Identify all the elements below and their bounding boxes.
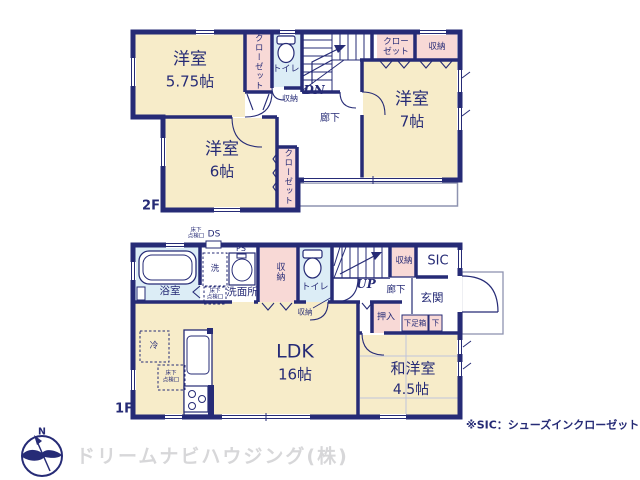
sink-icon (229, 253, 255, 285)
oshiire-label: 押入 (377, 314, 395, 323)
underfloor-ldk-line2: 点検口 (163, 378, 180, 384)
hallway-1f-label: 廊下 (386, 285, 405, 295)
stairs-up-label: UP (356, 278, 376, 290)
floorplan-page: 洋室 5.75帖 クローゼット トイレ 収納 DN クロー ゼット 収納 廊下 … (0, 0, 640, 480)
ldk-size: 16帖 (278, 368, 312, 383)
washitsu-name: 和洋室 (390, 362, 435, 377)
entrance-label: 玄関 (421, 292, 444, 304)
toilet-icon-1f (303, 250, 322, 278)
closet-ne-label-line2: ゼット (383, 48, 409, 57)
closet-ne-label-line1: クロー (383, 38, 409, 47)
underfloor-ldk-line1: 床下 (165, 371, 176, 377)
underfloor-top-line2: 点検口 (188, 234, 205, 240)
bedroom-e-size: 7帖 (400, 115, 425, 130)
sic-note: ※SIC：シューズインクローゼット (466, 420, 639, 431)
toilet-1f-label: トイレ (301, 284, 328, 293)
balcony (299, 183, 458, 206)
toilet-icon-2f (277, 36, 295, 63)
bedroom-sw-name: 洋室 (205, 142, 239, 159)
stairs-1f (334, 247, 382, 278)
company-watermark: ドリームナビハウジング(株) (76, 448, 349, 467)
room-ldk (135, 302, 358, 415)
closet-sw-label: クローゼット (283, 149, 292, 206)
bedroom-sw-size: 6帖 (210, 165, 235, 180)
sic-label: SIC (427, 255, 448, 268)
storage-hall-label: 収納 (395, 257, 412, 266)
floor1-label: 1F (115, 403, 133, 416)
storage-west-label: 収納 (275, 262, 284, 282)
ds-label: DS (208, 231, 221, 240)
ps-label: PS (236, 245, 246, 253)
bedroom-e-name: 洋室 (395, 92, 429, 109)
floorplan-drawing (0, 0, 640, 480)
fridge-label: 冷 (150, 342, 159, 351)
compass-icon (21, 435, 62, 476)
floor2-label: 2F (142, 200, 160, 213)
ldk-name: LDK (276, 343, 314, 362)
kitchen-counter (184, 328, 214, 415)
closet-nw-label: クローゼット (254, 34, 263, 91)
storage-ne-label: 収納 (428, 43, 445, 52)
storage-under-stairs-label: 収納 (282, 95, 298, 103)
compass-north-label: N (38, 427, 46, 437)
hallway-2f-label: 廊下 (320, 114, 340, 124)
bedroom-nw-name: 洋室 (173, 52, 207, 69)
washer-label: 洗 (211, 265, 220, 274)
stairs-down-label: DN (303, 84, 324, 96)
washroom-label: 洗面所 (226, 287, 258, 298)
bath-label: 浴室 (160, 286, 181, 297)
shoe-box-label: 下足箱 (404, 319, 427, 327)
storage-by-toilet-label: 収納 (298, 308, 313, 316)
toilet-2f-label: トイレ (272, 66, 299, 75)
washitsu-size: 4.5帖 (393, 383, 429, 397)
underfloor-wash-line2: 点検口 (207, 295, 224, 301)
bedroom-nw-size: 5.75帖 (166, 75, 214, 90)
ds-duct (206, 241, 221, 248)
shoe-box-sub-label: 下 (432, 319, 440, 327)
